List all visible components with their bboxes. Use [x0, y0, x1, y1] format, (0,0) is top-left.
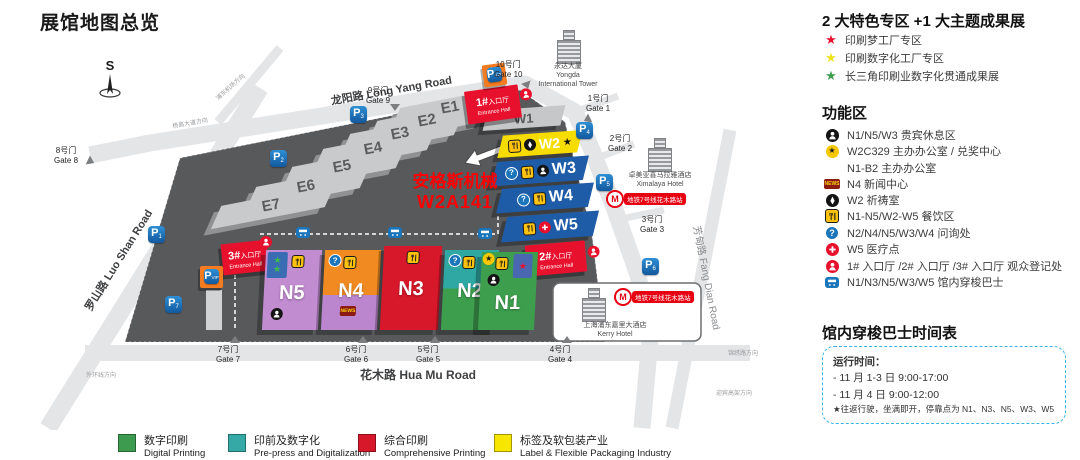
red-star-icon: ★ — [824, 32, 838, 48]
registration-icon — [587, 245, 600, 258]
booth-callout-name: 安格斯机械 — [375, 172, 535, 192]
building-icon — [582, 298, 606, 322]
function-item: N1-B2 主办办公室 — [824, 160, 936, 176]
metro-icon: M — [606, 190, 624, 208]
green-star-zone-marker: ★ ★ — [267, 252, 288, 278]
yellow-star-icon: ★ — [824, 50, 838, 66]
function-item: ★ W2C329 主办办公室 / 兑奖中心 — [824, 143, 1001, 159]
prayer-icon — [826, 194, 839, 207]
entrance-2-cn: 入口厅 — [551, 253, 573, 262]
gate-9-label: 9号门Gate 9 — [366, 86, 390, 105]
hall-w2-label: W2 — [538, 135, 560, 152]
entrance-1-en: Entrance Hall — [467, 105, 521, 119]
direction-jinxiu: 锦绣路方向 — [728, 348, 758, 357]
food-icon — [343, 256, 357, 269]
function-item: ? N2/N4/N5/W3/W4 问询处 — [824, 225, 970, 241]
legend-en: Label & Flexible Packaging Industry — [520, 448, 671, 459]
hall-n1: ★ ★ N1 — [478, 252, 538, 330]
gate-7-label: 7号门Gate 7 — [216, 345, 240, 364]
office-star-icon: ★ — [826, 145, 839, 158]
schedule-heading: 运行时间： — [833, 354, 1055, 370]
gate-5-label: 5号门Gate 5 — [416, 345, 440, 364]
food-icon — [508, 139, 522, 153]
legend-en: Comprehensive Printing — [384, 448, 485, 459]
gate-5-marker — [430, 336, 440, 343]
special-zone-item: ★ 长三角印刷业数字化贯通成果展 — [824, 68, 999, 84]
metro-station-label: 地铁7号线花木路站 — [632, 291, 694, 303]
schedule-note: ★往返行驶，坐满即开，停靠点为 N1、N3、N5、W3、W5 — [833, 403, 1055, 416]
legend-swatch — [358, 434, 376, 452]
direction-airport: 浦东机场方向 — [214, 71, 247, 102]
entrance-1-number: 1# — [475, 96, 489, 110]
hall-w4-label: W4 — [548, 187, 573, 207]
function-item-label: N1-N5/W2-W5 餐饮区 — [847, 208, 955, 224]
food-icon — [406, 251, 420, 264]
legend-en: Digital Printing — [144, 448, 205, 459]
compass-needle-icon — [98, 73, 122, 99]
information-icon: ? — [448, 254, 462, 267]
shuttle-bus-icon — [296, 227, 310, 238]
entrance-3-cn: 入口厅 — [240, 251, 262, 260]
shuttle-schedule-box: 运行时间： - 11 月 1-3 日 9:00-17:00 - 11 月 4 日… — [822, 346, 1066, 424]
legend-cn: 综合印刷 — [384, 432, 485, 448]
booth-callout-number: W2A141 — [375, 192, 535, 213]
star-icon: ★ — [273, 265, 282, 274]
red-star-zone-marker: ★ — [513, 254, 533, 278]
information-icon: ? — [328, 254, 342, 267]
road-luo-shan-label: 罗山路 Luo Shan Road — [81, 206, 156, 313]
special-zone-label: 长三角印刷业数字化贯通成果展 — [845, 68, 999, 84]
prayer-icon — [524, 138, 537, 151]
legend-swatch — [118, 434, 136, 452]
shuttle-bus-icon — [825, 277, 839, 288]
venue-map: S 龙阳路 Long Yang Road 罗山路 Luo Shan Road 花… — [30, 30, 820, 430]
ximalaya-hotel-building — [648, 138, 672, 172]
function-item: N1-N5/W2-W5 餐饮区 — [824, 208, 955, 224]
schedule-line-2: - 11 月 4 日 9:00-12:00 — [833, 387, 1055, 403]
office-star-icon: ★ — [482, 253, 495, 265]
metro-station-label: 地铁7号线花木路站 — [624, 193, 686, 205]
legend-cn: 印前及数字化 — [254, 432, 370, 448]
star-icon: ★ — [519, 262, 528, 271]
function-item-label: N1/N3/N5/W3/W5 馆内穿梭巴士 — [847, 274, 1003, 290]
direction-waihuan: 外环线方向 — [86, 370, 116, 379]
hall-n4-label: N4 — [322, 280, 379, 303]
food-icon — [522, 221, 536, 235]
function-item: W2 祈祷室 — [824, 192, 900, 208]
building-icon — [588, 288, 600, 298]
service-building-block — [206, 290, 222, 330]
function-item-label: 1# 入口厅 /2# 入口厅 /3# 入口厅 观众登记处 — [847, 258, 1062, 274]
hall-n3-label: N3 — [381, 278, 440, 301]
function-item-label: N1/N5/W3 贵宾休息区 — [847, 127, 956, 143]
parking-p7: P7 — [165, 296, 182, 313]
kerry-hotel-building — [582, 288, 606, 322]
building-icon — [557, 40, 581, 64]
function-area-title: 功能区 — [822, 102, 867, 123]
vip-lounge-icon — [487, 274, 500, 286]
gate-7-marker — [230, 336, 240, 343]
legend-item-label-packaging: 标签及软包装产业 Label & Flexible Packaging Indu… — [494, 432, 671, 459]
star-icon: ★ — [563, 136, 573, 148]
building-icon — [648, 148, 672, 172]
gate-3-label: 3号门Gate 3 — [640, 215, 664, 234]
vip-lounge-icon — [536, 164, 549, 177]
function-item: N1/N5/W3 贵宾休息区 — [824, 127, 956, 143]
parking-p6: P6 — [642, 258, 659, 275]
information-icon: ? — [825, 226, 839, 240]
registration-icon — [826, 260, 839, 273]
food-icon — [825, 209, 839, 223]
legend-swatch — [494, 434, 512, 452]
direction-yingbin: 迎宾高架方向 — [716, 388, 752, 397]
schedule-line-1: - 11 月 1-3 日 9:00-17:00 — [833, 370, 1055, 386]
hall-n3: N3 — [380, 246, 442, 330]
kerry-hotel-label: 上海浦东嘉里大酒店Kerry Hotel — [560, 322, 670, 340]
direction-yanggao: 杨高大道方向 — [171, 115, 208, 130]
function-item-label: N1-B2 主办办公室 — [847, 160, 936, 176]
green-star-icon: ★ — [824, 68, 838, 84]
special-zone-label: 印刷数字化工厂专区 — [845, 50, 944, 66]
info-panel: 2 大特色专区 +1 大主题成果展 ★ 印刷梦工厂专区 ★ 印刷数字化工厂专区 … — [822, 0, 1074, 460]
parking-p3: P3 — [350, 106, 367, 123]
function-item: 1# 入口厅 /2# 入口厅 /3# 入口厅 观众登记处 — [824, 258, 1062, 274]
yongda-tower-building — [557, 30, 581, 64]
hall-n1-label: N1 — [479, 292, 536, 315]
road-hua-mu-label: 花木路 Hua Mu Road — [360, 366, 476, 383]
gate-10-label: 10号门Gate 10 — [494, 60, 522, 79]
hall-w2: W2 ★ — [497, 130, 582, 158]
food-icon — [462, 256, 476, 269]
medical-icon — [826, 243, 839, 256]
parking-vip-west: PVIP — [200, 266, 223, 288]
news-center-icon: NEWS — [340, 306, 357, 316]
metro-icon: M — [614, 288, 632, 306]
gate-6-label: 6号门Gate 6 — [344, 345, 368, 364]
compass-s-label: S — [98, 58, 122, 73]
function-item: NEWS N4 新闻中心 — [824, 176, 908, 192]
legend-item-prepress: 印前及数字化 Pre-press and Digitalization — [228, 432, 370, 459]
gate-1-label: 1号门Gate 1 — [586, 94, 610, 113]
function-item-label: W2 祈祷室 — [847, 192, 900, 208]
gate-6-marker — [358, 336, 368, 343]
function-item-label: W5 医疗点 — [847, 241, 900, 257]
gate-4-label: 4号门Gate 4 — [548, 345, 572, 364]
food-icon — [495, 257, 509, 270]
gate-9-marker — [390, 104, 400, 111]
hall-n4: ? NEWS N4 — [321, 250, 381, 330]
news-center-icon: NEWS — [824, 179, 840, 189]
gate-8-marker — [86, 155, 97, 167]
special-zone-item: ★ 印刷数字化工厂专区 — [824, 50, 944, 66]
registration-icon — [260, 236, 272, 248]
legend-cn: 标签及软包装产业 — [520, 432, 671, 448]
special-zones-title: 2 大特色专区 +1 大主题成果展 — [822, 10, 1025, 31]
shuttle-bus-icon — [388, 227, 402, 238]
function-item-label: N4 新闻中心 — [847, 176, 908, 192]
ximalaya-hotel-label: 卓美亚喜马拉雅酒店Ximalaya Hotel — [615, 172, 705, 190]
compass: S — [98, 58, 122, 104]
legend-item-digital-printing: 数字印刷 Digital Printing — [118, 432, 205, 459]
building-icon — [563, 30, 575, 40]
special-zone-label: 印刷梦工厂专区 — [845, 32, 922, 48]
legend-cn: 数字印刷 — [144, 432, 205, 448]
entrance-1-cn: 入口厅 — [488, 97, 510, 107]
hall-w3-label: W3 — [551, 160, 576, 180]
legend-en: Pre-press and Digitalization — [254, 448, 370, 459]
entrance-3-number: 3# — [228, 250, 241, 263]
shuttle-schedule-title: 馆内穿梭巴士时间表 — [822, 322, 957, 343]
hall-w5-label: W5 — [553, 216, 578, 236]
parking-p1: P1 — [148, 226, 165, 243]
legend-item-comprehensive: 综合印刷 Comprehensive Printing — [358, 432, 485, 459]
function-item-label: W2C329 主办办公室 / 兑奖中心 — [847, 143, 1001, 159]
gate-8-label: 8号门Gate 8 — [54, 146, 78, 165]
vip-lounge-icon — [826, 129, 839, 142]
function-item: W5 医疗点 — [824, 241, 900, 257]
medical-icon — [538, 220, 551, 233]
function-item-label: N2/N4/N5/W3/W4 问询处 — [847, 225, 970, 241]
hall-n5-label: N5 — [263, 282, 320, 305]
yongda-tower-label: 永达大厦YongdaInternational Tower — [528, 63, 608, 89]
hall-w5: W5 — [501, 211, 599, 243]
building-icon — [654, 138, 666, 148]
vip-lounge-icon — [270, 308, 283, 320]
food-icon — [291, 255, 305, 268]
parking-p5: P5 — [596, 174, 613, 191]
shuttle-bus-icon — [478, 228, 492, 239]
exhibition-map-page: 展馆地图总览 S 龙阳路 Long Yang Ro — [0, 0, 1080, 460]
special-zone-item: ★ 印刷梦工厂专区 — [824, 32, 922, 48]
entrance-2-number: 2# — [539, 250, 552, 263]
legend-swatch — [228, 434, 246, 452]
hall-n5: ★ ★ N5 — [262, 250, 322, 330]
booth-callout: 安格斯机械 W2A141 — [375, 172, 535, 212]
road-fang-dian-label: 芳甸路 Fang Dian Road — [690, 224, 725, 331]
parking-p2: P2 — [270, 150, 287, 167]
gate-2-label: 2号门Gate 2 — [608, 134, 632, 153]
function-item: N1/N3/N5/W3/W5 馆内穿梭巴士 — [824, 274, 1003, 290]
